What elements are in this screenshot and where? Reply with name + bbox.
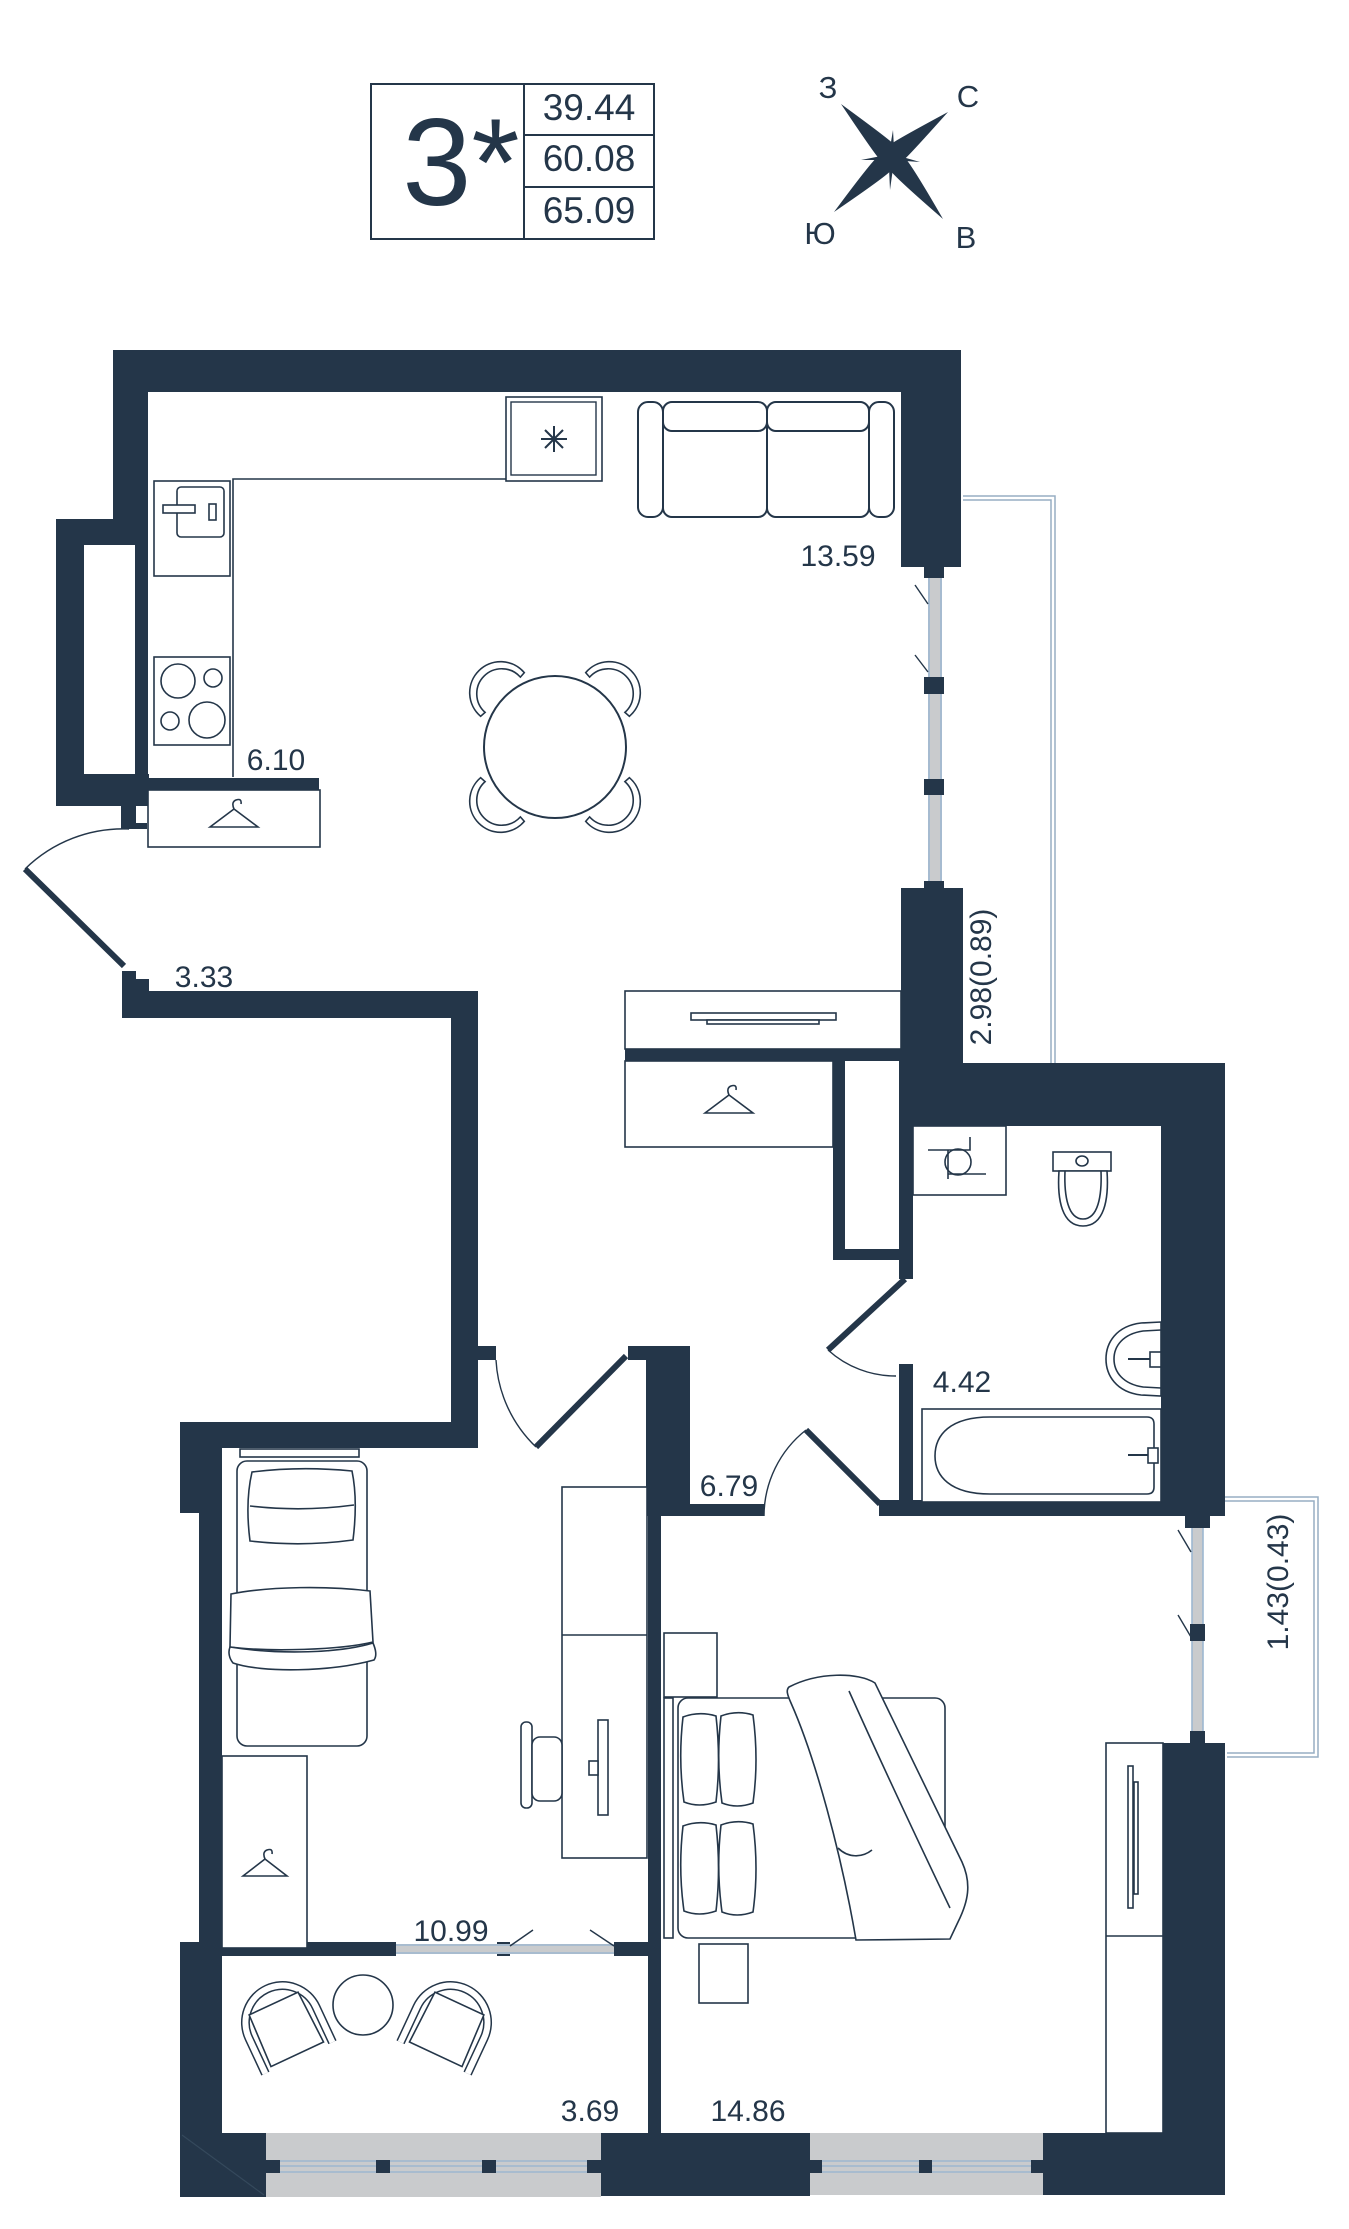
svg-text:3.33: 3.33 [175,961,233,994]
svg-text:С: С [957,79,979,114]
svg-text:2.98(0.89): 2.98(0.89) [965,909,998,1046]
svg-text:6.10: 6.10 [247,744,305,777]
svg-text:3*: 3* [402,94,519,232]
svg-text:4.42: 4.42 [933,1366,991,1399]
svg-text:6.79: 6.79 [700,1470,758,1503]
svg-text:14.86: 14.86 [710,2095,785,2128]
svg-text:65.09: 65.09 [543,190,636,231]
svg-text:З: З [819,70,838,105]
svg-text:39.44: 39.44 [543,87,636,128]
svg-text:В: В [956,220,977,255]
svg-text:13.59: 13.59 [800,540,875,573]
svg-text:1.43(0.43): 1.43(0.43) [1262,1514,1295,1651]
svg-text:10.99: 10.99 [413,1915,488,1948]
svg-text:Ю: Ю [804,216,835,251]
svg-text:60.08: 60.08 [543,138,636,179]
svg-text:3.69: 3.69 [561,2095,619,2128]
